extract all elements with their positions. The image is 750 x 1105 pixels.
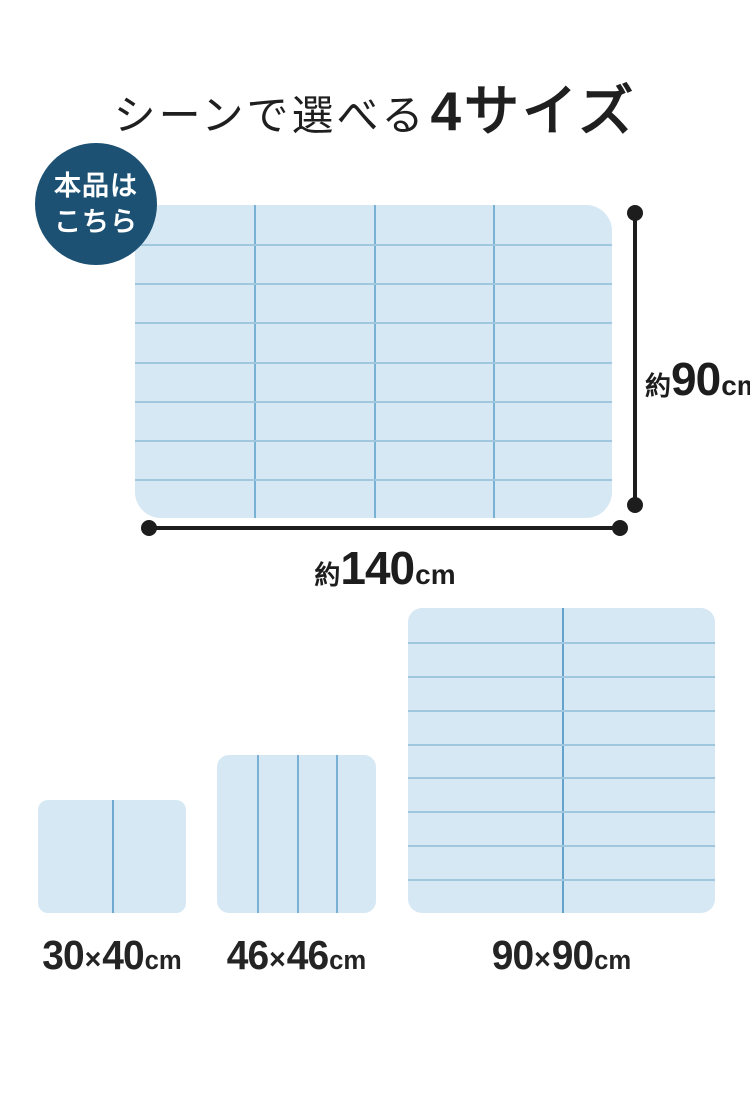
size-label-90x90: 90 × 90 cm <box>416 932 708 979</box>
grid-line <box>408 879 715 881</box>
times-sign: × <box>534 943 551 977</box>
times-sign: × <box>269 943 286 977</box>
grid-line <box>135 440 612 442</box>
size-height: 46 <box>287 932 328 979</box>
height-dimension-label: 約 90 cm <box>645 352 750 406</box>
grid-line <box>297 755 299 913</box>
height-approx: 約 <box>645 366 671 403</box>
size-mat-46x46 <box>217 755 376 913</box>
grid-line <box>135 401 612 403</box>
size-mat-30x40 <box>38 800 186 913</box>
size-width: 46 <box>227 932 268 979</box>
grid-line <box>408 710 715 712</box>
size-label-30x40: 30 × 40 cm <box>42 932 183 979</box>
grid-line <box>408 642 715 644</box>
dimension-bar <box>633 213 637 505</box>
grid-line <box>135 322 612 324</box>
height-unit: cm <box>721 370 750 402</box>
grid-line <box>408 744 715 746</box>
width-approx: 約 <box>314 555 340 592</box>
badge-line-1: 本品は <box>54 168 138 204</box>
grid-line <box>408 676 715 678</box>
width-value: 140 <box>340 541 414 595</box>
size-unit: cm <box>145 945 182 976</box>
grid-line <box>336 755 338 913</box>
size-mat-90x90 <box>408 608 715 913</box>
size-unit: cm <box>594 945 631 976</box>
size-height: 90 <box>552 932 593 979</box>
grid-line <box>112 800 114 913</box>
product-badge: 本品は こちら <box>35 143 157 265</box>
size-comparison-diagram: シーンで選べる 4サイズ 本品は こちら 約 90 cm 約 140 cm <box>0 0 750 1105</box>
size-width: 30 <box>42 932 83 979</box>
width-dimension-label: 約 140 cm <box>135 541 635 595</box>
grid-line <box>562 608 564 913</box>
title-highlight: 4サイズ <box>430 66 636 146</box>
grid-line <box>135 362 612 364</box>
size-unit: cm <box>329 945 366 976</box>
height-value: 90 <box>671 352 720 406</box>
grid-line <box>257 755 259 913</box>
width-dimension-line <box>141 520 628 537</box>
size-label-46x46: 46 × 46 cm <box>221 932 372 979</box>
grid-line <box>135 479 612 481</box>
grid-line <box>408 777 715 779</box>
grid-line <box>135 244 612 246</box>
grid-line <box>408 845 715 847</box>
grid-line <box>135 283 612 285</box>
title-prefix: シーンで選べる <box>114 82 427 143</box>
width-unit: cm <box>415 559 455 591</box>
times-sign: × <box>85 943 102 977</box>
badge-line-2: こちら <box>54 204 138 240</box>
dimension-bar <box>149 526 620 530</box>
grid-line <box>408 811 715 813</box>
height-dimension-line <box>627 205 644 513</box>
size-width: 90 <box>492 932 533 979</box>
size-height: 40 <box>102 932 143 979</box>
page-title: シーンで選べる 4サイズ <box>0 66 750 146</box>
main-mat-graphic <box>135 205 612 518</box>
